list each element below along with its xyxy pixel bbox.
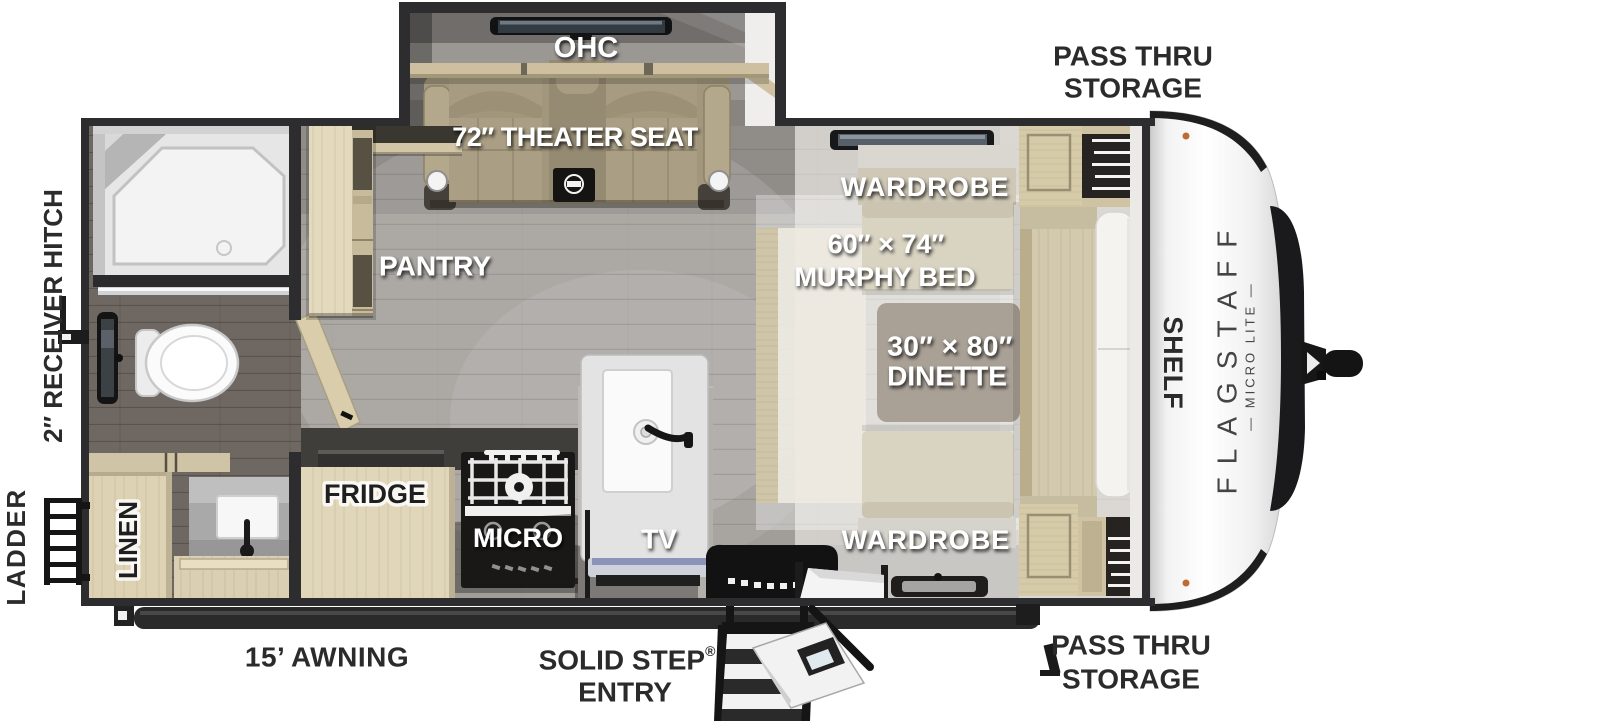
svg-text:PASS THRU: PASS THRU [1051,630,1211,661]
svg-text:LINEN: LINEN [113,501,143,579]
svg-text:OHC: OHC [554,32,619,64]
svg-text:60″ × 74″: 60″ × 74″ [828,229,945,259]
svg-text:STORAGE: STORAGE [1064,73,1202,104]
svg-text:WARDROBE: WARDROBE [842,525,1011,555]
svg-text:SHELF: SHELF [1158,316,1188,410]
svg-text:— MICRO LITE —: — MICRO LITE — [1243,281,1258,431]
svg-text:DINETTE: DINETTE [887,361,1007,392]
svg-text:30″ × 80″: 30″ × 80″ [887,331,1013,362]
svg-text:WARDROBE: WARDROBE [841,172,1010,202]
svg-text:MICRO: MICRO [473,523,563,553]
svg-text:15’ AWNING: 15’ AWNING [245,642,409,673]
svg-text:MURPHY BED: MURPHY BED [794,262,975,292]
svg-text:2″ RECEIVER HITCH: 2″ RECEIVER HITCH [38,189,68,443]
svg-text:STORAGE: STORAGE [1062,664,1200,695]
svg-text:LADDER: LADDER [1,488,31,605]
svg-text:72″ THEATER SEAT: 72″ THEATER SEAT [452,122,698,152]
svg-text:SOLID STEP®: SOLID STEP® [539,643,716,676]
svg-text:FLAGSTAFF: FLAGSTAFF [1212,218,1243,495]
svg-text:ENTRY: ENTRY [578,677,672,708]
svg-text:TV: TV [641,524,677,555]
svg-text:PASS THRU: PASS THRU [1053,41,1213,72]
svg-text:FRIDGE: FRIDGE [324,479,426,509]
svg-text:PANTRY: PANTRY [379,251,491,282]
